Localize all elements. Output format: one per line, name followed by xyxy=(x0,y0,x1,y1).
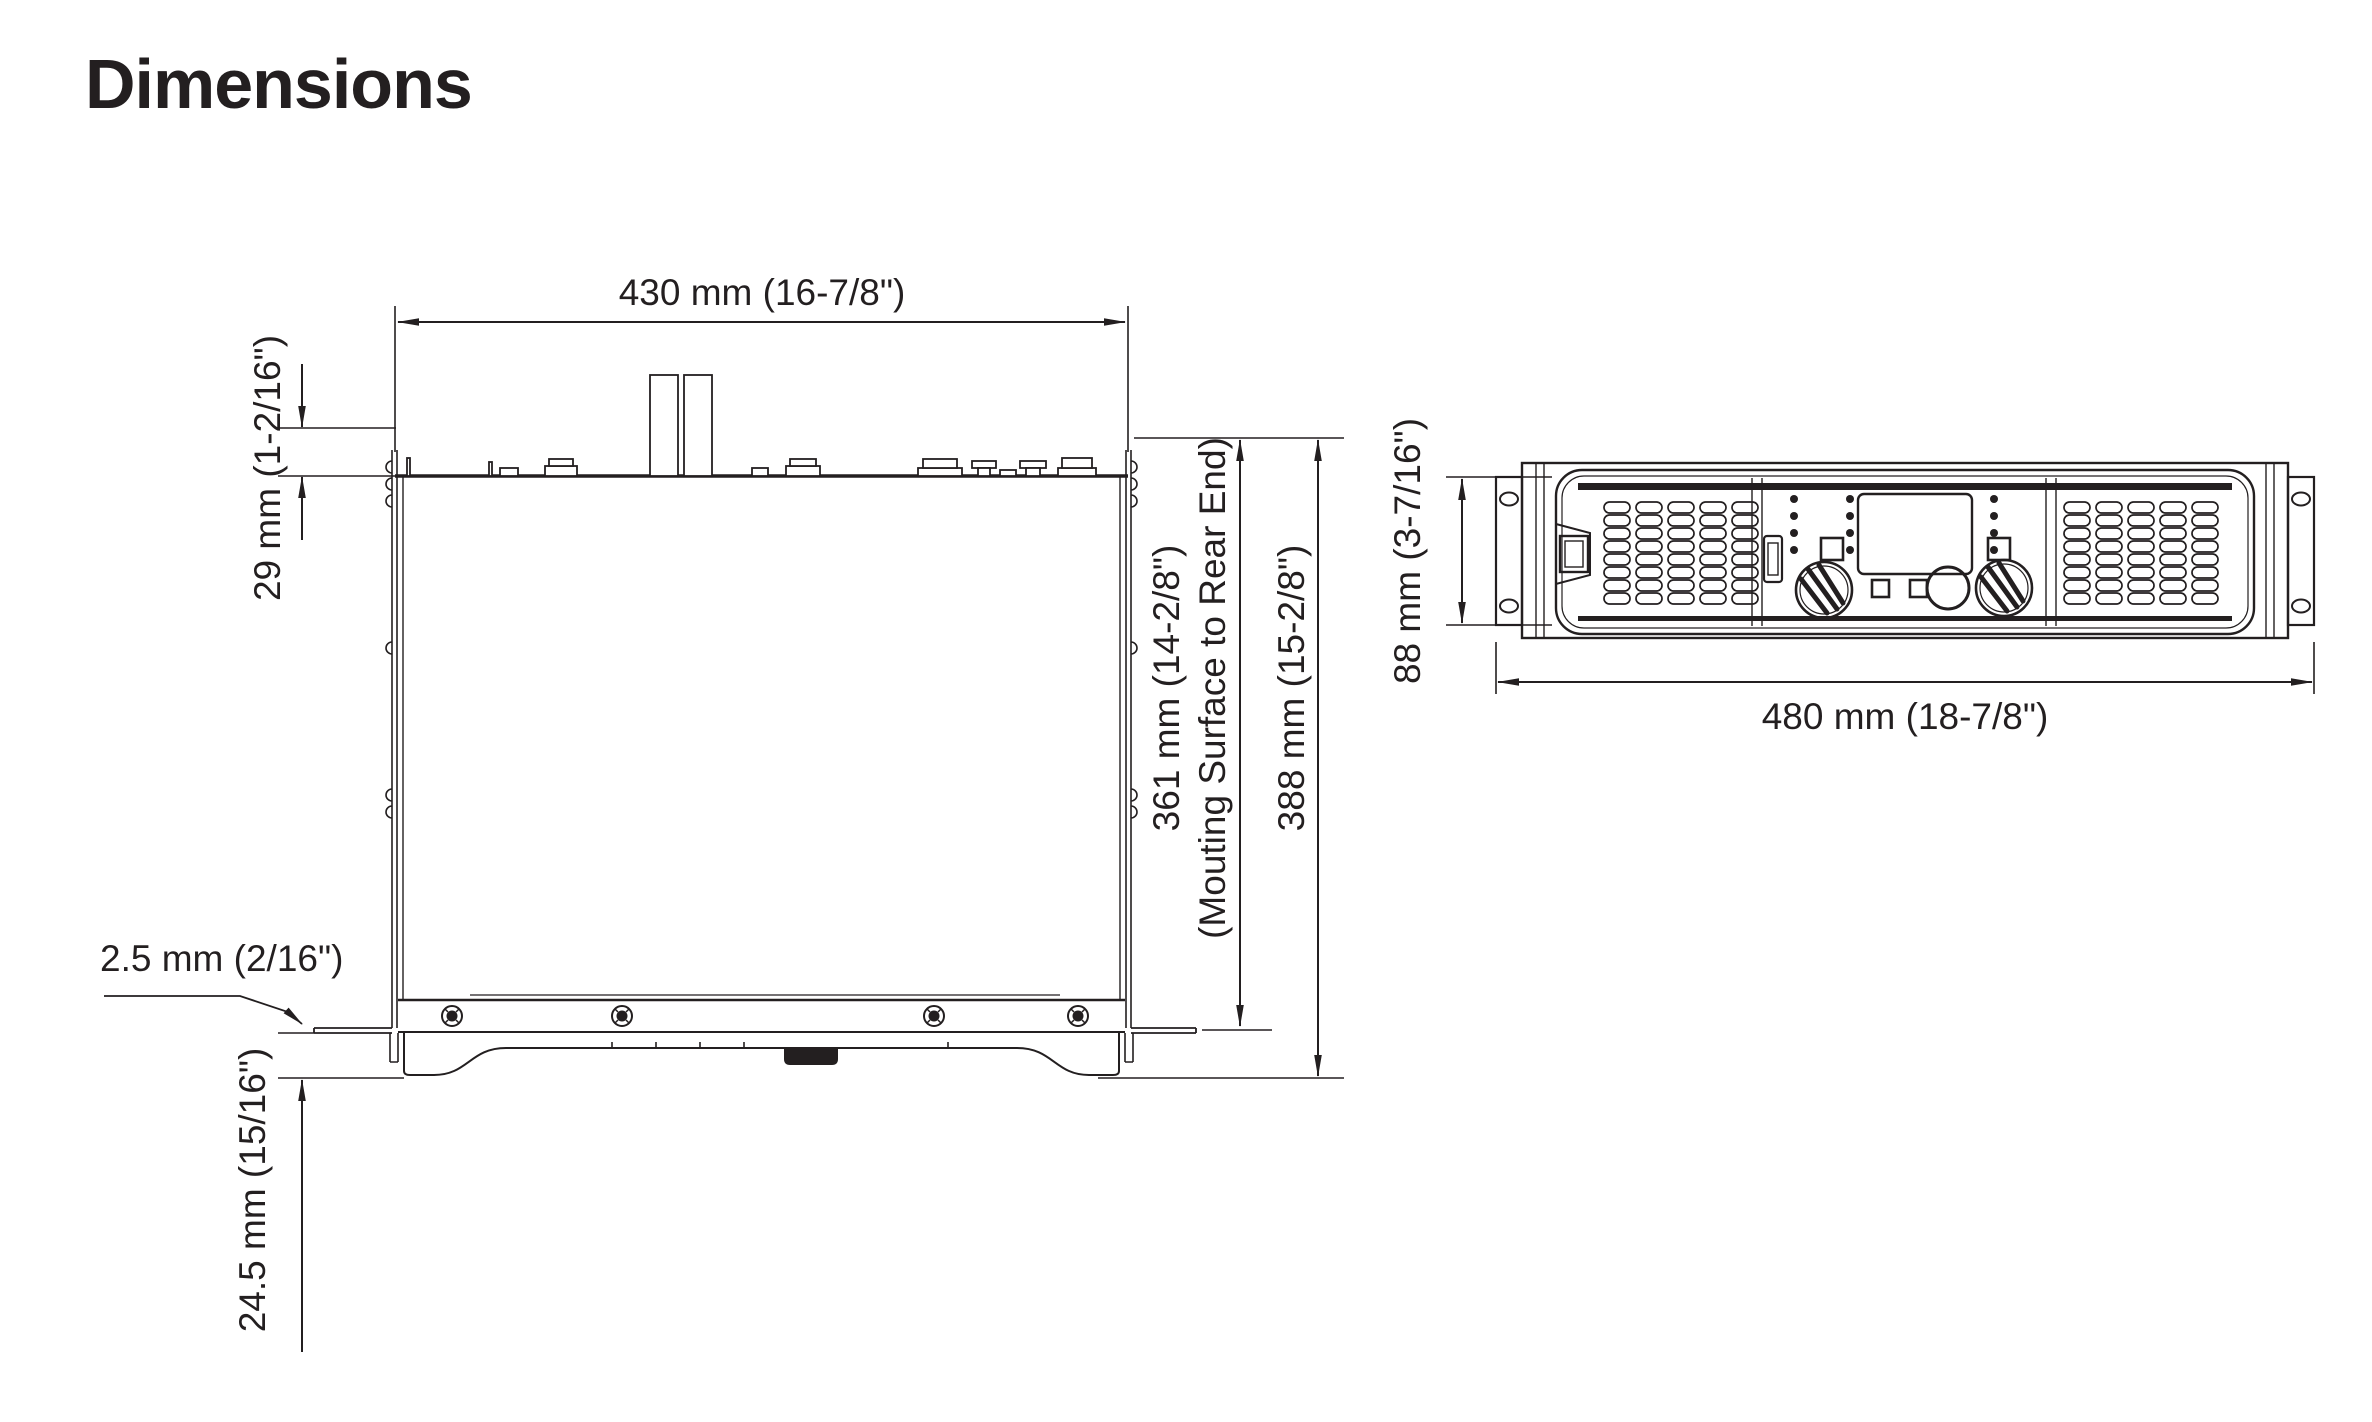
top-view-front-protrusion-label: 24.5 mm (15/16") xyxy=(231,970,275,1410)
mounting-depth-value: 361 mm (14-2/8") xyxy=(1144,545,1190,832)
front-view-drawing xyxy=(1446,463,2314,694)
mounting-depth-note: (Mouting Surface to Rear End) xyxy=(1190,437,1236,939)
top-view-rear-offset-label: 29 mm (1-2/16") xyxy=(246,268,290,668)
top-view-bracket-thickness-label: 2.5 mm (2/16") xyxy=(100,938,343,980)
top-view-total-depth-label: 388 mm (15-2/8") xyxy=(1270,408,1314,968)
top-view-width-label: 430 mm (16-7/8") xyxy=(562,272,962,314)
dimensions-page: { "title": "Dimensions", "ink_color": "#… xyxy=(0,0,2372,1422)
page-title: Dimensions xyxy=(85,44,472,124)
front-view-height-label: 88 mm (3-7/16") xyxy=(1386,351,1430,751)
top-view-mounting-depth-label: 361 mm (14-2/8") (Mouting Surface to Rea… xyxy=(1144,408,1236,968)
front-view-width-label: 480 mm (18-7/8") xyxy=(1705,696,2105,738)
